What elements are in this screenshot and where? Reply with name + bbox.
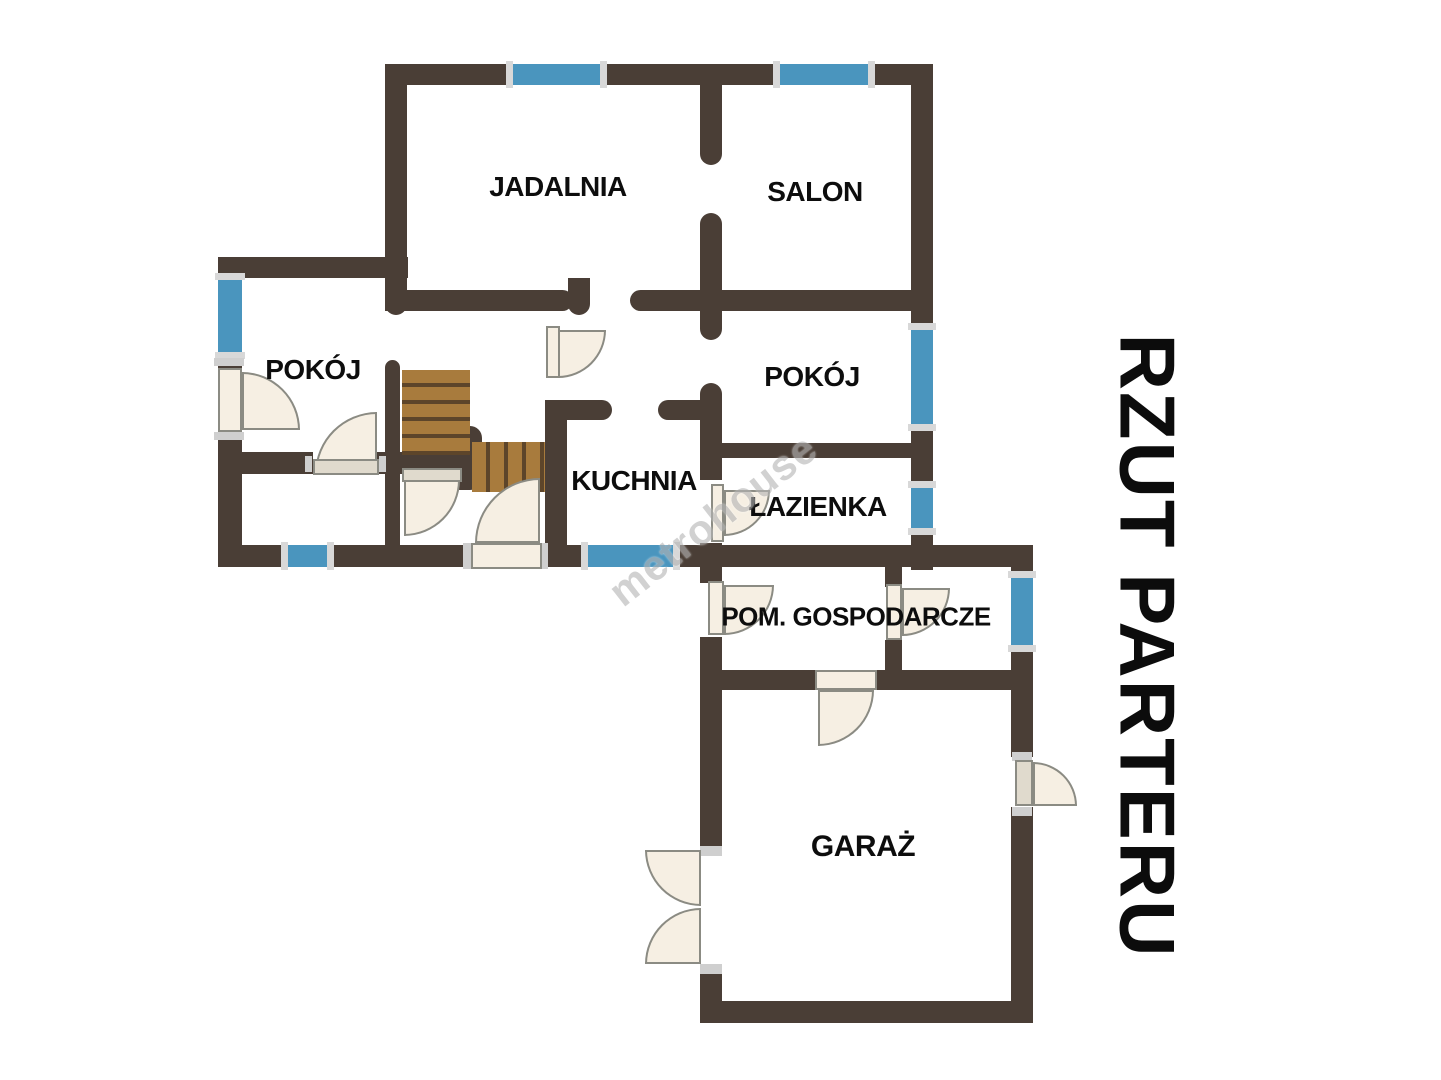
window-cap <box>215 273 245 280</box>
window-cap <box>506 61 513 88</box>
window-cap <box>281 542 288 570</box>
door-frame <box>379 456 386 472</box>
room-label-pokoj-right: POKÓJ <box>764 361 860 393</box>
wall-segment <box>722 443 933 458</box>
door-leaf <box>815 670 877 690</box>
door-arc <box>645 908 701 964</box>
stairs-flight-up <box>402 370 470 455</box>
door-arc <box>645 850 701 906</box>
window-cap <box>908 424 936 431</box>
door-arc <box>818 690 874 746</box>
window-cap <box>1008 645 1036 652</box>
room-label-kuchnia: KUCHNIA <box>571 465 697 497</box>
window <box>1011 578 1033 645</box>
door-arc <box>1033 762 1077 806</box>
wall-segment <box>545 400 612 420</box>
room-label-garaz: GARAŻ <box>811 830 915 864</box>
wall-segment <box>700 85 722 165</box>
window-cap <box>908 528 936 535</box>
window <box>513 64 600 85</box>
window <box>780 64 868 85</box>
door-frame <box>305 456 312 472</box>
window-cap <box>1008 571 1036 578</box>
door-frame <box>214 358 244 366</box>
door-frame <box>700 964 722 974</box>
wall-segment <box>700 637 722 850</box>
window <box>911 488 933 528</box>
wall-segment <box>218 257 408 278</box>
window-cap <box>908 481 936 488</box>
wall-segment <box>545 400 567 567</box>
door-leaf <box>313 459 379 475</box>
window-cap <box>600 61 607 88</box>
window-cap <box>908 323 936 330</box>
door-arc <box>558 330 606 378</box>
window-cap <box>327 542 334 570</box>
wall-segment <box>568 278 590 315</box>
room-label-salon: SALON <box>767 176 863 208</box>
door-frame <box>214 432 244 440</box>
door-frame <box>700 846 722 856</box>
wall-segment <box>630 290 933 311</box>
wall-segment <box>875 670 1033 690</box>
wall-segment <box>700 1001 1033 1023</box>
floor-plan: JADALNIA SALON POKÓJ POKÓJ KUCHNIA ŁAZIE… <box>0 0 1441 1080</box>
room-label-jadalnia: JADALNIA <box>489 171 627 203</box>
door-frame <box>463 543 471 569</box>
wall-segment <box>700 670 815 690</box>
window-cap <box>868 61 875 88</box>
window <box>288 545 327 567</box>
door-frame <box>1012 807 1032 816</box>
wall-segment <box>385 290 573 311</box>
window-cap <box>581 542 588 570</box>
door-arc <box>404 480 460 536</box>
plan-title: RZUT PARTERU <box>1102 334 1193 959</box>
room-label-pokoj-left: POKÓJ <box>265 354 361 386</box>
window-cap <box>773 61 780 88</box>
room-label-pom-gospodarcze: POM. GOSPODARCZE <box>721 602 990 633</box>
door-leaf <box>471 543 542 569</box>
wall-segment <box>700 213 722 340</box>
wall-segment <box>658 400 700 420</box>
wall-segment <box>1011 807 1033 1023</box>
wall-segment <box>700 383 722 480</box>
window <box>911 330 933 424</box>
window <box>218 280 242 352</box>
door-leaf <box>1015 760 1033 806</box>
door-leaf <box>218 368 242 432</box>
wall-segment <box>218 452 313 474</box>
